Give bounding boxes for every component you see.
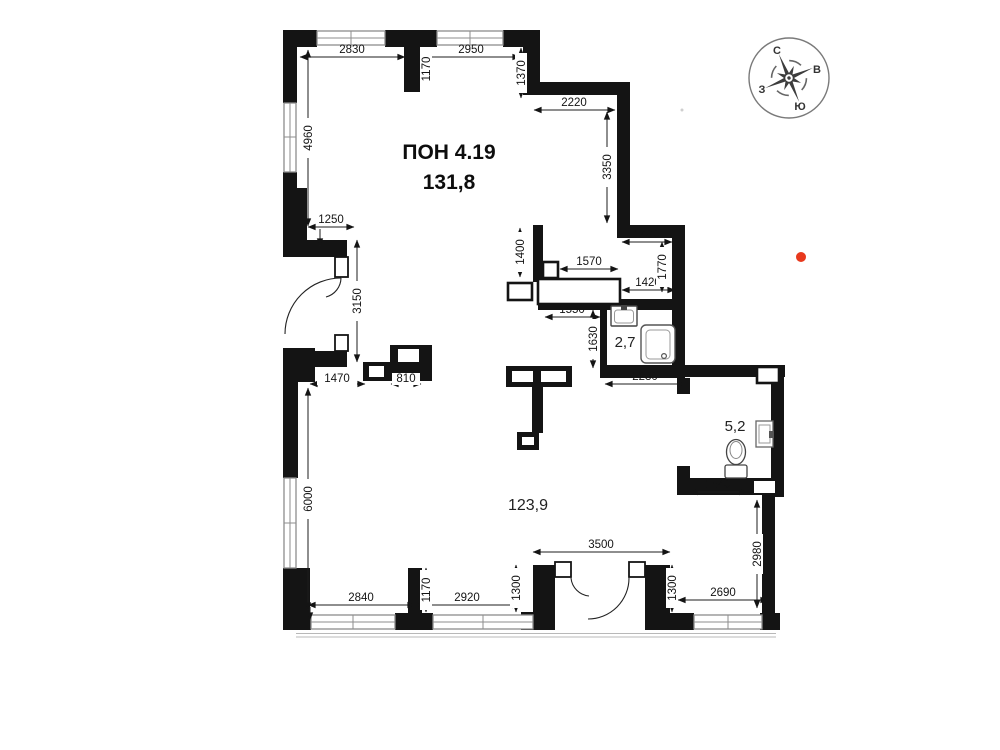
window [694,615,762,629]
wall-segment [677,466,690,480]
dim-mid-1770: 1770 [656,242,669,292]
wall-segment [283,382,298,478]
gray-speck [681,109,684,112]
dim-bottom-1300l: 1300 [510,565,523,612]
window [317,31,385,45]
compass-south-label: Ю [794,101,805,113]
balcony-door-swing [588,578,629,619]
wall-segment [385,30,437,47]
dim-label: 2980 [752,541,764,567]
dim-label: 1370 [516,60,528,86]
dim-label: 1540 [705,479,731,491]
shaft-inset [541,371,566,382]
dim-label: 1570 [576,256,602,268]
wall-segment [283,172,297,188]
window [433,615,533,629]
area-label-wc: 5,2 [725,418,746,435]
dim-label: 4960 [303,125,315,151]
area-label-main: 123,9 [508,497,548,514]
dim-top-1170: 1170 [420,49,433,89]
wall-segment [540,82,630,95]
window [284,103,296,172]
wall-segment [283,47,297,103]
doors [285,257,645,619]
dim-label: 2830 [339,44,365,56]
dim-label: 1400 [515,239,527,265]
wall-segment [600,306,607,368]
dim-label: 1170 [421,578,433,603]
compass-east-label: В [813,64,821,76]
window [437,31,503,45]
dim-right-2220: 2220 [534,97,615,110]
dim-bottom-1300r: 1300 [666,565,679,612]
dim-label: 1770 [657,254,669,280]
dim-label: 1550 [559,304,585,316]
dim-label: 2690 [710,587,736,599]
dim-label: 1170 [421,57,433,82]
compass-rose: С В З Ю [749,38,829,118]
compass-star [755,44,823,112]
unit-area-total: 131,8 [423,171,476,194]
shaft-inset [369,366,384,377]
dim-entry-3150: 3150 [351,240,364,362]
dim-bath-1630: 1630 [587,310,600,368]
bathroom-sink [611,305,637,326]
wall-segment [283,240,347,257]
compass-west-label: З [759,84,766,96]
red-dot-marker [796,252,806,262]
shaft-box [538,279,620,304]
toilet [725,440,747,479]
wall-segment [668,613,694,630]
dim-top-1370: 1370 [515,48,528,98]
dim-label: 2920 [454,592,480,604]
wall-segment [503,30,540,47]
dim-label: 1300 [667,575,679,601]
dim-label: 810 [396,373,415,385]
dim-mid-1400v: 1400 [514,228,527,277]
dim-bottom-1170: 1170 [420,568,433,612]
dim-label: 3150 [352,288,364,314]
dim-label: 1630 [588,326,600,352]
balcony-door-leaf [571,578,589,596]
dim-label: 2230 [632,371,658,383]
dim-label: 1470 [324,373,350,385]
window [311,615,395,629]
dim-label: 1300 [511,575,523,601]
dim-label: 2220 [561,97,587,109]
wall-pier [404,47,420,92]
dim-label: 6000 [303,486,315,512]
entry-door-swing [285,278,341,334]
compass-north-label: С [773,45,781,57]
dim-label: 1400 [634,229,660,241]
shaft-inset [522,437,534,445]
wall-pier [408,568,422,615]
dim-label: 1250 [318,214,344,226]
dim-bottom-3500: 3500 [533,539,670,552]
door-jamb [555,562,571,577]
unit-title: ПОН 4.19 [402,141,495,164]
walls [283,30,785,630]
entry-door-leaf [326,278,341,297]
dim-label: 2840 [348,592,374,604]
dim-mid-1570: 1570 [560,256,618,269]
floor-plan: 2830 2950 2220 1250 1400 1570 1420 [0,0,1000,750]
dim-right-3350: 3350 [601,112,614,223]
dim-hall-1470: 1470 [310,373,365,385]
shaft-box [543,262,558,278]
area-label-bathroom: 2,7 [615,334,636,351]
dim-label: 3350 [602,154,614,180]
door-jamb [629,562,645,577]
wall-pier [395,613,433,630]
wall-segment [677,378,690,394]
wall-segment [283,613,311,630]
wall-segment [533,225,543,282]
shaft-box [757,367,779,383]
dim-label: 2950 [458,44,484,56]
wc-sink [756,421,774,447]
window [284,478,296,568]
dimension-lines: 2830 2950 2220 1250 1400 1570 1420 [300,44,768,620]
shaft-inset [512,371,533,382]
dim-hall-810: 810 [391,373,421,385]
door-jamb [335,335,348,351]
wall-segment [283,30,317,47]
wall-segment [760,613,780,630]
shaft-box [508,283,532,300]
shaft-inset [754,481,775,493]
dim-bottom-2690: 2690 [678,587,768,600]
fixtures [611,305,774,478]
shower-tray [641,325,675,363]
wall-segment [617,95,630,225]
wall-segment [283,348,315,382]
door-jamb [335,257,348,277]
dim-label: 3500 [588,539,614,551]
windows [284,31,776,637]
duct-stem [532,387,543,433]
room-labels: ПОН 4.19 131,8 2,7 5,2 123,9 [402,141,745,514]
shaft-inset [398,349,419,362]
